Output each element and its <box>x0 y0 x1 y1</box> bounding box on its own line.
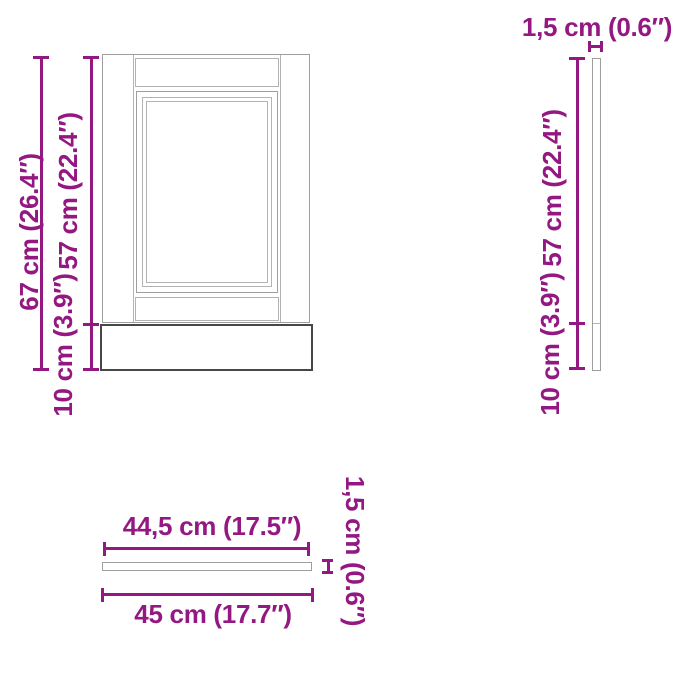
front-door-right-stile-line <box>280 55 281 322</box>
top-total-width-dim-tick-left <box>101 588 104 602</box>
side-panel-divider-line <box>593 323 600 324</box>
front-plinth-height-label: 10 cm (3.9″) <box>50 273 76 416</box>
side-segment-dim-line <box>576 58 579 370</box>
top-total-width-dim-line <box>102 593 314 596</box>
front-segment-dim-tick-bottom <box>83 368 99 371</box>
front-total-height-dim-tick-bottom <box>33 368 49 371</box>
side-door-height-label: 57 cm (22.4″) <box>539 109 565 266</box>
front-total-height-dim-line <box>40 57 43 370</box>
front-door-panel-outer <box>136 91 278 293</box>
front-segment-dim-tick-mid <box>83 323 99 326</box>
top-door-width-dim-tick-right <box>307 542 310 556</box>
front-door-left-stile-line <box>133 55 134 322</box>
top-total-width-dim-tick-right <box>311 588 314 602</box>
side-thickness-dim-tick-left <box>588 41 591 52</box>
top-door-width-label: 44,5 cm (17.5″) <box>123 513 302 539</box>
top-view: 44,5 cm (17.5″) 45 cm (17.7″) 1,5 cm (0.… <box>0 0 700 700</box>
top-thickness-dim-line <box>327 559 330 574</box>
top-door-width-dim-line <box>104 547 310 550</box>
top-thickness-dim-tick-bottom <box>322 571 333 574</box>
front-door-outline <box>102 54 310 323</box>
side-view: 1,5 cm (0.6″) 57 cm (22.4″) 10 cm (3.9″) <box>0 0 700 700</box>
side-segment-dim-tick-top <box>569 57 585 60</box>
side-segment-dim-tick-mid <box>569 322 585 325</box>
side-plinth-height-label: 10 cm (3.9″) <box>537 272 563 415</box>
front-door-panel-inner <box>146 101 268 283</box>
front-plinth <box>100 324 313 371</box>
side-thickness-label: 1,5 cm (0.6″) <box>522 14 672 40</box>
front-door-height-label: 57 cm (22.4″) <box>55 112 81 269</box>
side-thickness-dim-line <box>588 45 603 48</box>
dimension-diagram: 67 cm (26.4″) 57 cm (22.4″) 10 cm (3.9″)… <box>0 0 700 700</box>
side-segment-dim-tick-bottom <box>569 367 585 370</box>
side-thickness-dim-tick-right <box>600 41 603 52</box>
front-door-bottom-rail <box>135 297 279 321</box>
top-thickness-label: 1,5 cm (0.6″) <box>342 476 368 626</box>
top-thickness-dim-tick-top <box>322 559 333 562</box>
front-view: 67 cm (26.4″) 57 cm (22.4″) 10 cm (3.9″) <box>0 0 700 700</box>
side-panel-bar <box>592 58 601 371</box>
top-door-width-dim-tick-left <box>103 542 106 556</box>
front-total-height-dim-tick-top <box>33 56 49 59</box>
front-total-height-label: 67 cm (26.4″) <box>16 153 42 310</box>
front-door-top-rail <box>135 58 279 87</box>
front-segment-dim-line <box>90 57 93 370</box>
front-door-panel-middle <box>142 97 272 287</box>
top-total-width-label: 45 cm (17.7″) <box>134 601 291 627</box>
top-panel-bar <box>102 562 312 571</box>
front-segment-dim-tick-top <box>83 56 99 59</box>
